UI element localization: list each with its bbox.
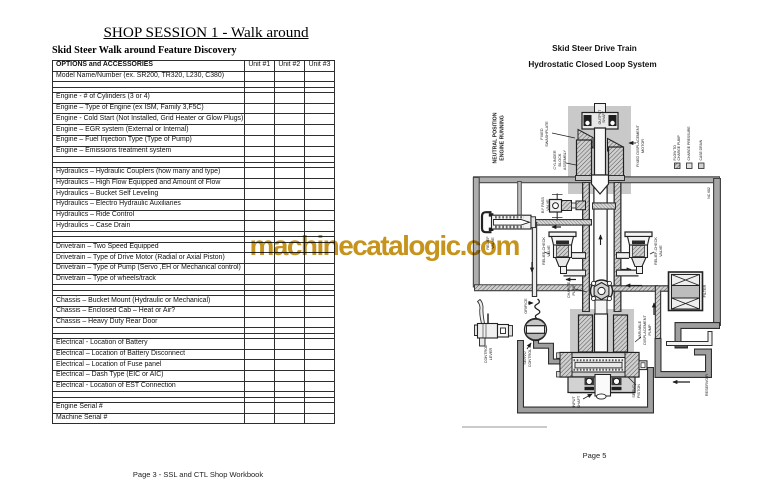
svg-text:SERVO: SERVO [523,351,527,364]
svg-text:SHAFT: SHAFT [602,110,606,123]
svg-text:FIXED: FIXED [540,128,544,139]
svg-text:NC 682: NC 682 [707,187,711,199]
svg-text:VALVE: VALVE [546,199,550,211]
svg-text:FIXED DISPLACEMENT: FIXED DISPLACEMENT [636,124,640,166]
svg-text:ENGINE RUNNING: ENGINE RUNNING [500,115,506,161]
svg-text:INPUT: INPUT [572,396,576,408]
svg-text:FILTER: FILTER [703,284,707,297]
svg-text:CASE DRAIN: CASE DRAIN [699,139,703,160]
svg-text:CONTROL: CONTROL [528,349,532,368]
svg-text:VARIABLE: VARIABLE [638,320,642,339]
svg-text:DISPLACEMENT: DISPLACEMENT [643,315,647,345]
svg-text:PISTON: PISTON [637,384,641,398]
svg-text:RESERVOIR: RESERVOIR [705,374,709,397]
svg-text:BLOCK: BLOCK [558,153,562,166]
svg-text:ASSEMBLY: ASSEMBLY [563,149,567,170]
svg-text:PUMP: PUMP [648,324,652,335]
svg-text:CHARGE PRESSURE: CHARGE PRESSURE [687,126,691,161]
svg-text:SHAFT: SHAFT [577,395,581,408]
svg-text:CHARGE: CHARGE [567,281,571,298]
svg-text:NEUTRAL POSITION: NEUTRAL POSITION [493,112,499,163]
svg-text:BY PASS: BY PASS [541,197,545,213]
svg-text:PUMP: PUMP [572,284,576,295]
svg-text:ORIFICE: ORIFICE [524,298,528,314]
svg-text:CHARGE PUMP: CHARGE PUMP [677,135,681,161]
svg-text:CYLINDER: CYLINDER [553,150,557,169]
svg-text:SWASHPLATE: SWASHPLATE [545,121,549,147]
svg-text:LEVER: LEVER [489,348,493,361]
svg-text:CONTROL: CONTROL [484,345,488,364]
svg-text:SERVO: SERVO [632,384,636,397]
svg-text:MOTOR: MOTOR [641,139,645,153]
